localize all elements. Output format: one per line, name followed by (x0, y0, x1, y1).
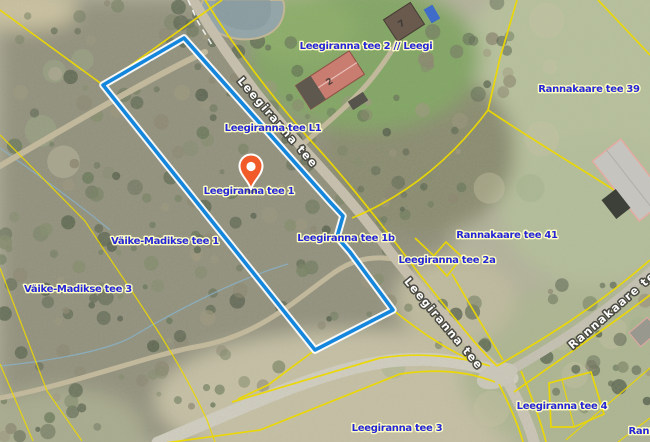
address-label-rannakaare-tee-edge: Rannakaare tee (629, 426, 650, 437)
address-label-vaike-madikse-tee-3: Väike-Madikse tee 3 (24, 284, 132, 295)
address-label-vaike-madikse-tee-1: Väike-Madikse tee 1 (111, 236, 219, 247)
address-label-leegiranna-tee-l1: Leegiranna tee L1 (225, 123, 322, 134)
address-label-leegiranna-tee-2a: Leegiranna tee 2a (398, 255, 495, 266)
address-label-leegiranna-tee-4: Leegiranna tee 4 (517, 401, 608, 412)
address-label-leegiranna-tee-2-leegi: Leegiranna tee 2 // Leegi (300, 41, 433, 52)
marker-pin-hole (246, 162, 255, 171)
map-canvas: Leegiranna teeLeegiranna teeRannakaare t… (0, 0, 650, 442)
address-label-leegiranna-tee-1b: Leegiranna tee 1b (297, 233, 395, 244)
address-label-rannakaare-tee-39: Rannakaare tee 39 (538, 84, 640, 95)
address-label-leegiranna-tee-3: Leegiranna tee 3 (352, 423, 443, 434)
map-viewport[interactable]: Leegiranna teeLeegiranna teeRannakaare t… (0, 0, 650, 442)
address-label-rannakaare-tee-41: Rannakaare tee 41 (456, 230, 558, 241)
